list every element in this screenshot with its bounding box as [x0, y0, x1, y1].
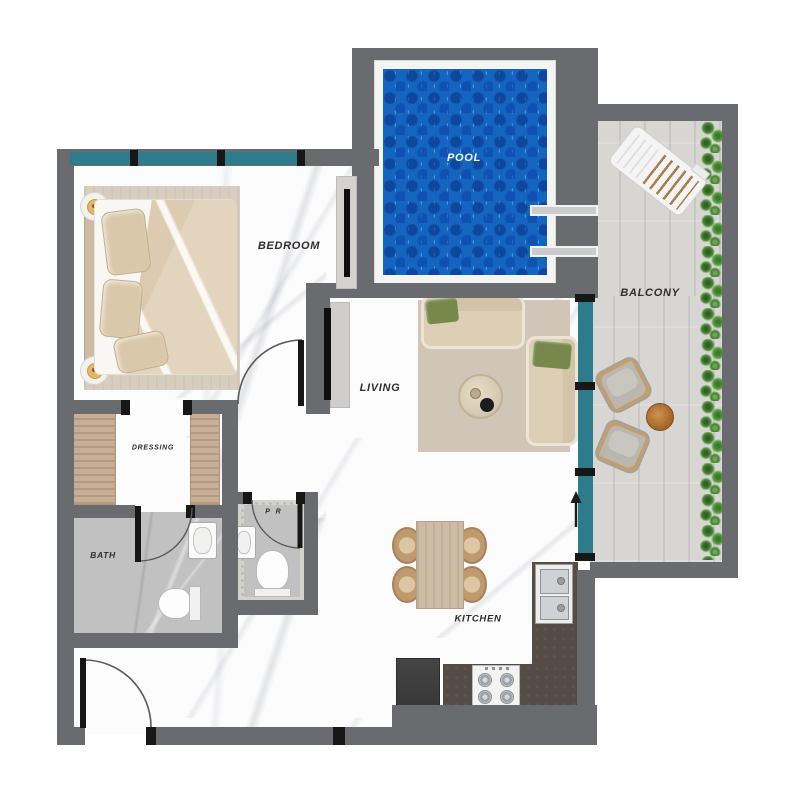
wall: [57, 633, 237, 648]
window-mullion: [217, 150, 225, 166]
sink-drain: [557, 604, 565, 612]
kitchen-sink: [535, 564, 573, 624]
bedroom-window-glazing: [70, 152, 302, 165]
table-decor: [480, 398, 494, 412]
cooktop: [472, 665, 520, 707]
wardrobe: [190, 405, 220, 505]
door-jamb: [146, 727, 156, 745]
pillow: [99, 278, 144, 339]
pillow: [100, 208, 151, 277]
dressing-label: DRESSING: [132, 445, 174, 452]
sink-drain: [557, 577, 565, 585]
pool-step: [530, 246, 598, 257]
dining-table: [416, 521, 464, 609]
wall: [722, 104, 738, 578]
wall: [392, 705, 597, 743]
hedge-plants: [700, 122, 724, 560]
window-mullion: [575, 294, 595, 302]
tv-console: [330, 302, 350, 408]
pool: [383, 69, 547, 275]
pool-label: POOL: [447, 152, 481, 164]
wall: [57, 727, 85, 745]
knob-strip: [485, 667, 509, 670]
tv-icon: [344, 189, 350, 277]
living-label: LIVING: [360, 382, 401, 394]
sofa: [526, 336, 578, 446]
door-jamb: [121, 400, 130, 415]
window-mullion: [575, 553, 595, 561]
tv-icon: [324, 308, 331, 400]
burner-icon: [500, 690, 514, 704]
door-jamb: [296, 492, 305, 504]
balcony-label: BALCONY: [620, 287, 679, 299]
wardrobe: [72, 412, 116, 505]
sofa-pillow: [532, 340, 572, 369]
table-decor: [470, 388, 481, 399]
wall: [57, 149, 74, 745]
wall: [304, 492, 318, 615]
floor-plan: POOL BALCONY BEDROOM LIVING DRESSING BAT…: [0, 0, 800, 800]
toilet-tank: [189, 586, 201, 621]
window-mullion: [575, 382, 595, 390]
window-mullion: [575, 468, 595, 476]
bath-label: BATH: [90, 550, 116, 560]
balcony-side-table: [646, 403, 674, 431]
fridge: [396, 658, 440, 708]
door-jamb: [333, 727, 345, 745]
balcony-window-glazing: [578, 296, 593, 560]
bed: [94, 199, 236, 375]
wall: [195, 505, 232, 518]
wall: [560, 104, 738, 121]
wall: [57, 400, 123, 414]
powder-room-label: P R: [265, 509, 282, 516]
burner-icon: [478, 673, 492, 687]
door-jamb: [243, 492, 252, 504]
window-mullion: [297, 150, 305, 166]
burner-icon: [478, 690, 492, 704]
toilet-icon: [256, 550, 289, 590]
toilet-icon: [158, 588, 191, 619]
wall: [57, 505, 135, 518]
coffee-table: [458, 374, 503, 419]
wall: [222, 600, 318, 615]
bath-sink-icon: [188, 522, 217, 559]
burner-icon: [500, 673, 514, 687]
door-jamb: [186, 505, 195, 518]
bedroom-label: BEDROOM: [258, 240, 320, 252]
kitchen-label: KITCHEN: [454, 614, 501, 625]
sofa: [421, 295, 525, 349]
pool-step: [530, 205, 598, 216]
wall: [590, 562, 738, 578]
door-jamb: [183, 400, 192, 415]
toilet-tank: [254, 588, 291, 597]
window-mullion: [130, 150, 138, 166]
sofa-pillow: [425, 297, 459, 324]
